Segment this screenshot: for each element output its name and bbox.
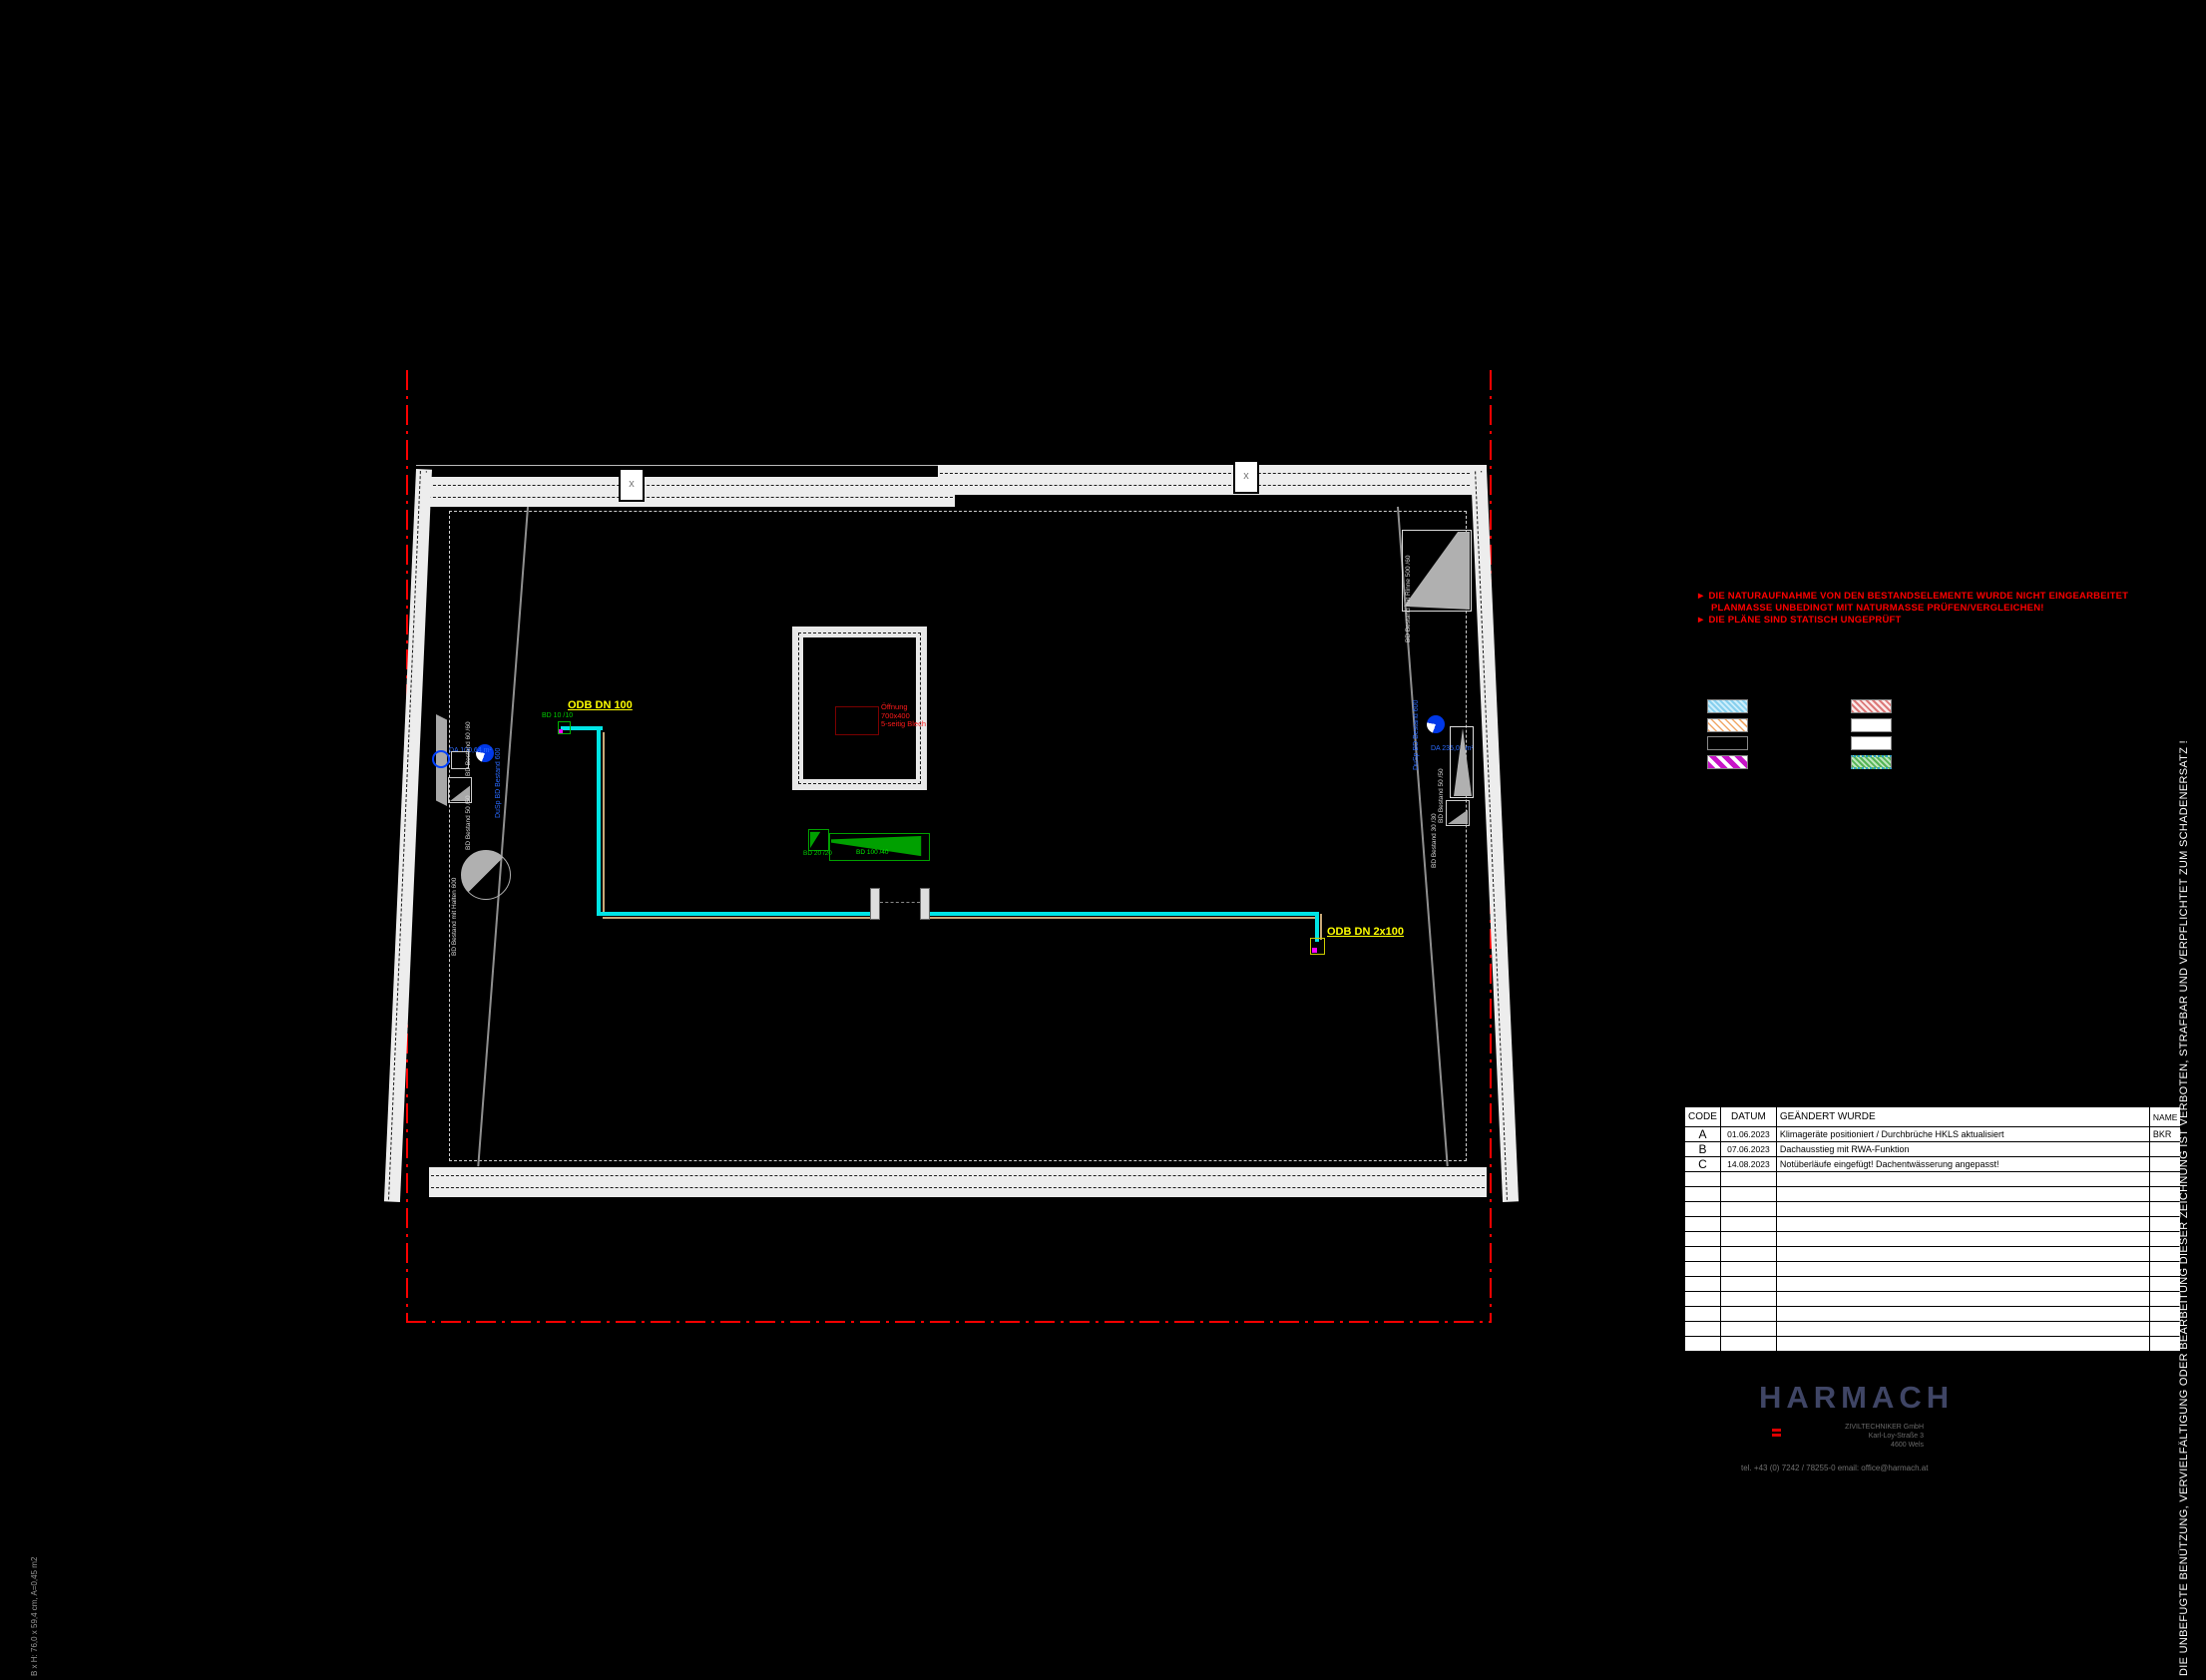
pipe-horizontal-2-bestand xyxy=(930,917,1319,919)
table-row xyxy=(1685,1262,2181,1277)
right-detail-wedge xyxy=(1452,728,1472,796)
rev-code: A xyxy=(1685,1127,1721,1142)
pipe-end-marker xyxy=(1312,948,1317,953)
logo-mark-icon xyxy=(1772,1429,1781,1432)
pipe-inlet-marker xyxy=(559,729,563,733)
right-top-detail-box xyxy=(1402,530,1472,612)
legend-swatch-zigzag-2 xyxy=(1851,736,1892,750)
col-header-datum: DATUM xyxy=(1720,1107,1776,1127)
bottom-wall xyxy=(429,1167,1487,1197)
pipe-vertical-left-bestand xyxy=(603,732,605,916)
company-line-3: 4600 Wels xyxy=(1796,1441,1924,1450)
rev-datum: 01.06.2023 xyxy=(1720,1127,1776,1142)
rev-text: Klimageräte positioniert / Durchbrüche H… xyxy=(1776,1127,2149,1142)
table-row xyxy=(1685,1292,2181,1307)
existing-dome-symbol xyxy=(461,850,511,900)
column-box-2: x xyxy=(1233,460,1259,494)
company-logo: HARMACH xyxy=(1759,1380,1954,1416)
green-wedge-large-label: BD 100 /40 xyxy=(856,849,889,856)
pipe-vertical-right-bestand xyxy=(1320,914,1322,940)
green-wedge-large xyxy=(829,833,930,861)
table-row xyxy=(1685,1187,2181,1202)
right-top-wedge xyxy=(1404,532,1470,610)
right-bestand-label-2: BD Bestand 30 /30 xyxy=(1431,798,1438,868)
green-wedge-small xyxy=(808,829,829,851)
rev-datum: 07.06.2023 xyxy=(1720,1142,1776,1157)
table-row xyxy=(1685,1217,2181,1232)
warning-line-3: ► DIE PLÄNE SIND STATISCH UNGEPRÜFT xyxy=(1696,615,2128,627)
table-row: C 14.08.2023 Notüberläufe eingefügt! Dac… xyxy=(1685,1157,2181,1172)
company-address: ZIVILTECHNIKER GmbH Karl-Loy-Straße 3 46… xyxy=(1796,1423,1924,1450)
right-detail-wedge-2 xyxy=(1448,802,1468,824)
right-wall xyxy=(1471,469,1519,1202)
table-row xyxy=(1685,1172,2181,1187)
legend-swatch-pink-hatch xyxy=(1851,699,1892,713)
pipe-label-dn100: ODB DN 100 xyxy=(568,699,633,711)
right-bestand-label-1: BD Bestand 50 /50 xyxy=(1438,753,1445,823)
legend-swatch-cyan-hatch xyxy=(1707,699,1748,713)
pipe-horizontal-1 xyxy=(597,912,872,916)
rev-text: Notüberläufe eingefügt! Dachentwässerung… xyxy=(1776,1157,2149,1172)
existing-dome-label: BD Bestand mit Halten 600 xyxy=(451,846,458,956)
right-drain-pipe-label: DuSp BD Bestand 600 xyxy=(1413,678,1420,770)
pipe-wall-slot-2 xyxy=(920,888,930,920)
legend-swatch-green-dotted xyxy=(1851,755,1892,769)
revision-empty-rows xyxy=(1685,1172,2181,1352)
rev-name xyxy=(2149,1142,2181,1157)
table-row xyxy=(1685,1232,2181,1247)
table-row: B 07.06.2023 Dachausstieg mit RWA-Funkti… xyxy=(1685,1142,2181,1157)
rev-datum: 14.08.2023 xyxy=(1720,1157,1776,1172)
left-bestand-label-1: BD Bestand 60 /60 xyxy=(465,706,472,776)
right-top-label: BD Bestand mit Rinne 500 /60 xyxy=(1405,533,1412,642)
copyright-vertical-text: DIE UNBEFUGTE BENÜTZUNG, VERVIELFÄLTIGUN… xyxy=(2178,599,2190,1676)
table-row xyxy=(1685,1322,2181,1337)
company-line-2: Karl-Loy-Straße 3 xyxy=(1796,1432,1924,1441)
pipe-horizontal-1-bestand xyxy=(603,917,872,919)
legend-swatch-red-crosshatch xyxy=(1707,736,1748,750)
table-row xyxy=(1685,1247,2181,1262)
pipe-slot-dash xyxy=(880,902,920,903)
rev-text: Dachausstieg mit RWA-Funktion xyxy=(1776,1142,2149,1157)
opening-rect xyxy=(835,706,879,735)
pipe-size-label-left: BD 10 /10 xyxy=(542,712,573,719)
pipe-end-box xyxy=(1310,938,1325,955)
warning-notes: ► DIE NATURAUFNAHME VON DEN BESTANDSELEM… xyxy=(1696,591,2128,627)
table-row xyxy=(1685,1202,2181,1217)
pipe-horizontal-2 xyxy=(930,912,1319,916)
revision-header-row: CODE DATUM GEÄNDERT WURDE NAME xyxy=(1685,1107,2181,1127)
warning-arrow-icon-2: ► xyxy=(1696,615,1706,626)
table-row xyxy=(1685,1277,2181,1292)
drawing-sheet: x x Öffnung 700x400 5-seitig Blech BD 10… xyxy=(0,0,2206,1680)
sheet-format-note: B x H: 76,0 x 59,4 cm, A=0,45 m2 xyxy=(30,1516,39,1676)
col-header-name: NAME xyxy=(2149,1107,2181,1127)
col-header-code: CODE xyxy=(1685,1107,1721,1127)
legend-swatch-zigzag-1 xyxy=(1851,718,1892,732)
warning-arrow-icon: ► xyxy=(1696,591,1706,602)
top-wall-right xyxy=(938,465,1487,495)
warning-text-1: DIE NATURAUFNAHME VON DEN BESTANDSELEMEN… xyxy=(1708,591,2128,602)
warning-text-3: DIE PLÄNE SIND STATISCH UNGEPRÜFT xyxy=(1708,615,1901,626)
pipe-label-dn2x100: ODB DN 2x100 xyxy=(1327,926,1404,938)
rev-name xyxy=(2149,1157,2181,1172)
column-box-1: x xyxy=(619,468,645,502)
legend-swatch-magenta-stripe xyxy=(1707,755,1748,769)
opening-note: Öffnung 700x400 5-seitig Blech xyxy=(881,703,926,729)
top-wall-left xyxy=(416,477,955,507)
right-roof-drain xyxy=(1427,715,1445,733)
rev-code: B xyxy=(1685,1142,1721,1157)
boundary-bottom xyxy=(406,1321,1492,1323)
revision-table-wrap: CODE DATUM GEÄNDERT WURDE NAME A 01.06.2… xyxy=(1682,1104,2183,1354)
right-detail-box-1 xyxy=(1450,726,1474,798)
col-header-changed: GEÄNDERT WURDE xyxy=(1776,1107,2149,1127)
pipe-vertical-left xyxy=(597,726,601,916)
green-wedge-small-fill xyxy=(810,831,827,849)
table-row xyxy=(1685,1307,2181,1322)
green-wedge-small-label: BD 20 /20 xyxy=(803,850,832,857)
table-row: A 01.06.2023 Klimageräte positioniert / … xyxy=(1685,1127,2181,1142)
company-line-1: ZIVILTECHNIKER GmbH xyxy=(1796,1423,1924,1432)
right-detail-box-2 xyxy=(1446,800,1470,826)
rev-name: BKR xyxy=(2149,1127,2181,1142)
warning-line-2: PLANMASSE UNBEDINGT MIT NATURMASSE PRÜFE… xyxy=(1696,603,2128,615)
pipe-wall-slot-1 xyxy=(870,888,880,920)
pipe-inlet-box xyxy=(558,721,571,734)
left-drain-pipe-label: DuSp BD Bestand 600 xyxy=(495,726,502,818)
revision-table: CODE DATUM GEÄNDERT WURDE NAME A 01.06.2… xyxy=(1684,1106,2181,1352)
warning-line-1: ► DIE NATURAUFNAHME VON DEN BESTANDSELEM… xyxy=(1696,591,2128,603)
opening-note-line3: 5-seitig Blech xyxy=(881,720,926,729)
left-bestand-label-2: BD Bestand 50 /50 xyxy=(465,780,472,850)
table-row xyxy=(1685,1337,2181,1352)
parapet-dashed-outline xyxy=(449,511,1467,1161)
rev-code: C xyxy=(1685,1157,1721,1172)
left-overflow-ring xyxy=(432,750,450,768)
legend-swatch-orange-hatch xyxy=(1707,718,1748,732)
company-contact: tel. +43 (0) 7242 / 78255-0 email: offic… xyxy=(1741,1464,1928,1472)
